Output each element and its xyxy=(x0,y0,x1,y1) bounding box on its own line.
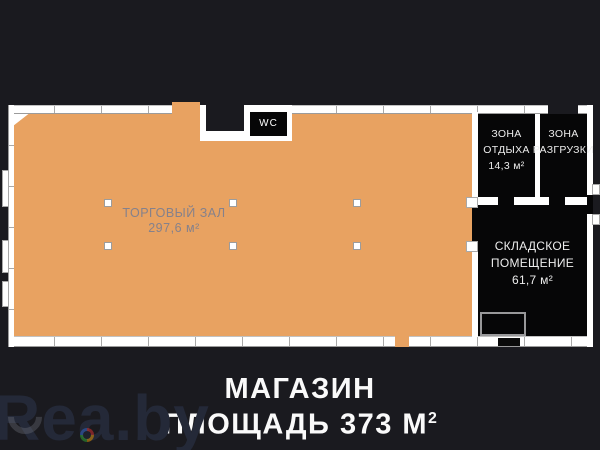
trade-hall-name: ТОРГОВЫЙ ЗАЛ xyxy=(89,206,259,221)
window-tab-left-3 xyxy=(2,281,9,307)
column xyxy=(229,242,237,250)
rest-zone-name-line2: ОТДЫХА xyxy=(477,142,536,158)
column xyxy=(353,199,361,207)
floorplan-image: WC ТОРГОВЫЙ ЗАЛ 297,6 м² ЗОНА ОТДЫХА 14,… xyxy=(0,0,600,450)
rest-zone-area: 14,3 м² xyxy=(477,158,536,174)
door-opening-unload xyxy=(549,197,565,205)
wall-niche xyxy=(206,103,244,131)
column xyxy=(353,242,361,250)
caption-area-sup: 2 xyxy=(428,410,437,427)
window-tab-left-1 xyxy=(2,170,9,207)
door-opening-rest xyxy=(498,197,514,205)
watermark-rainbow-dot xyxy=(80,428,94,442)
storage-name-line2: ПОМЕЩЕНИЕ xyxy=(478,255,587,272)
trade-hall-label: ТОРГОВЫЙ ЗАЛ 297,6 м² xyxy=(89,206,259,236)
rest-zone-name-line1: ЗОНА xyxy=(477,126,536,142)
storage-area: 61,7 м² xyxy=(478,272,587,289)
door-jamb-left-2 xyxy=(466,241,478,252)
door-jamb-right-2 xyxy=(592,214,600,225)
unloading-zone-name-line1: ЗОНА xyxy=(531,126,596,142)
top-wall-opening xyxy=(548,103,578,114)
storage-label: СКЛАДСКОЕ ПОМЕЩЕНИЕ 61,7 м² xyxy=(478,238,587,289)
caption-store: МАГАЗИН xyxy=(224,373,375,405)
bottom-wall-opening xyxy=(498,338,520,346)
right-wall-opening xyxy=(587,195,593,214)
wc-room: WC xyxy=(250,112,287,136)
storage-closet xyxy=(480,312,526,336)
rest-zone-label: ЗОНА ОТДЫХА 14,3 м² xyxy=(477,126,536,174)
wall-left xyxy=(8,105,14,347)
unloading-zone-label: ЗОНА РАЗГРУЗКИ xyxy=(531,126,596,158)
column xyxy=(104,242,112,250)
top-floor-bump xyxy=(172,102,200,114)
watermark-dot-center xyxy=(83,431,91,439)
bottom-entrance xyxy=(395,336,409,347)
wall-storage-top xyxy=(472,197,593,205)
trade-hall-area: 297,6 м² xyxy=(89,221,259,236)
wall-top xyxy=(8,105,593,114)
door-opening-storage-left xyxy=(472,208,478,242)
door-jamb-right-1 xyxy=(592,184,600,195)
storage-name-line1: СКЛАДСКОЕ xyxy=(478,238,587,255)
unloading-zone-name-line2: РАЗГРУЗКИ xyxy=(531,142,596,158)
window-tab-left-2 xyxy=(2,240,9,273)
door-jamb-left-1 xyxy=(466,197,478,208)
wc-label: WC xyxy=(250,112,287,136)
corner-chamfer xyxy=(13,112,31,126)
